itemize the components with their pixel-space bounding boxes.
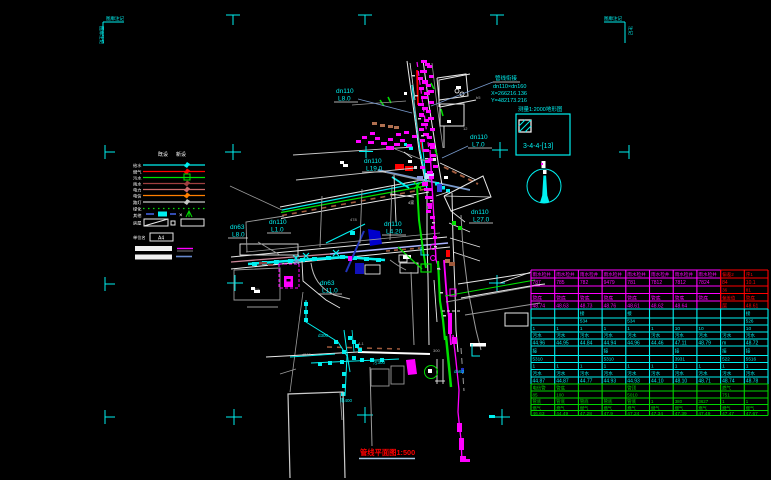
svg-text:9479: 9479 [604, 280, 615, 286]
svg-text:47.28: 47.28 [580, 411, 592, 417]
svg-text:管底: 管底 [556, 398, 565, 405]
svg-text:dn110: dn110 [471, 209, 489, 216]
svg-text:1: 1 [698, 364, 701, 370]
svg-text:绿化: 绿化 [133, 206, 142, 213]
svg-text:图廓注记: 图廓注记 [604, 15, 622, 22]
svg-text:燃气: 燃气 [580, 405, 589, 412]
svg-text:785: 785 [556, 280, 565, 286]
svg-text:751: 751 [722, 393, 730, 398]
svg-text:12: 12 [463, 126, 468, 131]
svg-text:管底: 管底 [604, 295, 614, 302]
svg-text:Y=482173.216: Y=482173.216 [491, 98, 527, 104]
svg-text:44.49: 44.49 [556, 411, 568, 417]
svg-text:其他: 其他 [133, 212, 142, 219]
svg-text:L8.0: L8.0 [338, 96, 351, 103]
svg-text:雨水检井: 雨水检井 [604, 271, 623, 278]
svg-text:电力: 电力 [133, 187, 141, 194]
svg-text:dn63: dn63 [454, 369, 465, 374]
svg-text:1: 1 [580, 364, 583, 370]
svg-text:污水: 污水 [133, 175, 142, 182]
svg-text:污300: 污300 [373, 359, 386, 366]
svg-text:47.49: 47.49 [698, 411, 710, 417]
svg-text:L8.0: L8.0 [232, 232, 245, 239]
svg-text:管底: 管底 [556, 385, 565, 392]
svg-text:47.9: 47.9 [604, 411, 614, 417]
svg-text:图廓注记: 图廓注记 [106, 15, 124, 22]
svg-text:782: 782 [580, 280, 589, 286]
svg-text:测量1:2000地形图: 测量1:2000地形图 [518, 105, 563, 113]
svg-text:序1: 序1 [746, 271, 754, 278]
svg-text:污水: 污水 [746, 370, 756, 377]
svg-text:dn63: dn63 [320, 280, 335, 287]
svg-text:5310: 5310 [604, 357, 615, 362]
svg-text:10: 10 [698, 326, 704, 332]
svg-text:46.63: 46.63 [533, 411, 545, 417]
svg-text:dn110: dn110 [470, 134, 488, 141]
svg-text:L27.0: L27.0 [473, 217, 490, 224]
svg-text:L19.0: L19.0 [366, 166, 383, 173]
svg-text:电信: 电信 [133, 193, 141, 200]
svg-text:污水: 污水 [651, 370, 661, 377]
svg-text:接: 接 [722, 348, 727, 355]
svg-text:A4: A4 [158, 236, 164, 242]
svg-text:燃气: 燃气 [133, 169, 142, 176]
svg-text:接: 接 [604, 348, 609, 355]
svg-text:管底: 管底 [533, 398, 542, 405]
svg-text:7812: 7812 [651, 280, 662, 286]
svg-text:d300: d300 [318, 333, 329, 338]
svg-text:接: 接 [580, 310, 585, 317]
svg-text:1: 1 [675, 364, 678, 370]
svg-text:污水: 污水 [675, 332, 685, 339]
svg-text:燃气: 燃气 [746, 405, 755, 412]
svg-text:管底: 管底 [675, 295, 685, 302]
svg-text:管线平面图1:500: 管线平面图1:500 [360, 448, 415, 457]
svg-text:L1.0: L1.0 [271, 227, 284, 234]
svg-text:781: 781 [627, 280, 636, 286]
svg-text:污水: 污水 [580, 370, 590, 377]
svg-text:接: 接 [675, 348, 680, 355]
svg-text:偏差值: 偏差值 [722, 295, 736, 302]
svg-text:1: 1 [627, 364, 630, 370]
svg-text:管线衔接: 管线衔接 [495, 74, 518, 82]
svg-text:接: 接 [627, 310, 632, 317]
svg-text:接: 接 [746, 348, 751, 355]
svg-text:管底: 管底 [604, 398, 613, 405]
svg-text:1: 1 [604, 364, 607, 370]
svg-text:燃气: 燃气 [627, 405, 636, 412]
svg-text:污水: 污水 [698, 370, 708, 377]
svg-text:路灯: 路灯 [133, 199, 142, 206]
svg-text:污水: 污水 [556, 370, 566, 377]
svg-text:污水: 污水 [746, 332, 756, 339]
svg-text:污水: 污水 [627, 370, 637, 377]
svg-text:管底: 管底 [580, 398, 589, 405]
svg-text:燃气: 燃气 [698, 405, 707, 412]
svg-text:1: 1 [722, 364, 725, 370]
svg-text:雨水检井: 雨水检井 [533, 271, 552, 278]
svg-text:dn110: dn110 [269, 219, 287, 226]
svg-text:管顶: 管顶 [627, 385, 636, 392]
svg-text:污水: 污水 [722, 370, 732, 377]
svg-text:380: 380 [675, 399, 683, 404]
svg-text:L7.0: L7.0 [472, 142, 485, 149]
svg-text:污水: 污水 [604, 332, 614, 339]
svg-text:管底: 管底 [627, 398, 636, 405]
svg-text:1: 1 [556, 326, 559, 332]
svg-text:雨水检井: 雨水检井 [580, 271, 599, 278]
svg-text:dn110: dn110 [364, 158, 382, 165]
svg-text:污水: 污水 [556, 332, 566, 339]
svg-text:84: 84 [722, 280, 728, 286]
svg-text:管底: 管底 [627, 295, 637, 302]
svg-text:偏差2: 偏差2 [722, 271, 734, 278]
svg-text:燃气: 燃气 [675, 405, 684, 412]
svg-text:1: 1 [533, 326, 536, 332]
svg-text:526: 526 [746, 319, 754, 324]
svg-text:10.1: 10.1 [746, 280, 756, 286]
svg-text:300: 300 [433, 348, 440, 353]
svg-text:管底: 管底 [533, 295, 543, 302]
svg-text:燃气: 燃气 [651, 405, 660, 412]
svg-text:X=266216.136: X=266216.136 [491, 91, 527, 97]
svg-text:7812: 7812 [675, 280, 686, 286]
svg-text:4-1: 4-1 [358, 341, 365, 346]
svg-text:1: 1 [533, 364, 536, 370]
svg-text:雨水检井: 雨水检井 [675, 271, 694, 278]
svg-text:100: 100 [556, 393, 564, 398]
svg-text:雨水检井: 雨水检井 [627, 271, 646, 278]
svg-text:污水: 污水 [675, 370, 685, 377]
svg-text:×: × [179, 213, 183, 219]
svg-text:dn63: dn63 [230, 224, 245, 231]
svg-text:管底: 管底 [746, 295, 756, 302]
svg-text:3931: 3931 [675, 357, 686, 362]
svg-text:污水: 污水 [722, 332, 732, 339]
svg-text:5516: 5516 [746, 357, 757, 362]
svg-text:dn110: dn110 [336, 88, 354, 95]
svg-text:1: 1 [556, 364, 559, 370]
svg-text:污水: 污水 [627, 332, 637, 339]
svg-text:5010: 5010 [627, 393, 638, 398]
svg-text:dn110: dn110 [384, 221, 402, 228]
svg-text:1: 1 [604, 326, 607, 332]
svg-text:534: 534 [627, 319, 635, 324]
svg-text:管底: 管底 [651, 295, 661, 302]
svg-text:污水: 污水 [651, 332, 661, 339]
svg-text:污水: 污水 [580, 332, 590, 339]
svg-text:燃气: 燃气 [722, 385, 731, 392]
svg-text:85: 85 [533, 393, 539, 398]
svg-text:接: 接 [746, 310, 751, 317]
svg-text:注记: 注记 [627, 26, 634, 35]
svg-text:522: 522 [722, 357, 730, 362]
svg-text:3627: 3627 [698, 399, 708, 404]
svg-text:d500: d500 [302, 352, 312, 357]
svg-text:燃气: 燃气 [604, 405, 613, 412]
svg-text:燃气: 燃气 [533, 405, 542, 412]
svg-text:雨水检井: 雨水检井 [651, 271, 670, 278]
svg-text:雨水检井: 雨水检井 [556, 271, 575, 278]
svg-text:雨水: 雨水 [133, 181, 142, 188]
svg-text:4家: 4家 [408, 199, 414, 205]
svg-text:10: 10 [746, 326, 752, 332]
svg-text:雨水检井: 雨水检井 [698, 271, 717, 278]
svg-text:房屋: 房屋 [133, 220, 141, 227]
svg-text:47.47: 47.47 [722, 411, 734, 417]
svg-text:36: 36 [722, 288, 728, 293]
svg-text:给水: 给水 [133, 162, 142, 169]
svg-text:47.67: 47.67 [746, 411, 758, 417]
svg-text:10: 10 [675, 326, 681, 332]
svg-text:L11.0: L11.0 [322, 288, 338, 295]
svg-text:污水: 污水 [533, 370, 543, 377]
svg-text:47.24: 47.24 [627, 411, 639, 417]
svg-text:81: 81 [746, 288, 752, 293]
svg-text:管底: 管底 [698, 295, 708, 302]
svg-text:燃气: 燃气 [722, 405, 731, 412]
svg-text:污水: 污水 [698, 332, 708, 339]
svg-text:534: 534 [580, 319, 588, 324]
svg-text:新设: 新设 [176, 151, 186, 158]
svg-text:787: 787 [533, 280, 542, 286]
svg-text:47.39: 47.39 [675, 411, 687, 417]
svg-text:燃气: 燃气 [556, 405, 565, 412]
svg-text:dn110×dn160: dn110×dn160 [493, 84, 526, 90]
svg-text:1: 1 [627, 326, 630, 332]
svg-text:47.34: 47.34 [651, 411, 663, 417]
svg-text:478: 478 [350, 217, 357, 222]
svg-text:电信管: 电信管 [533, 385, 547, 392]
svg-text:污水: 污水 [604, 370, 614, 377]
svg-text:b5: b5 [476, 95, 481, 100]
svg-text:1: 1 [651, 326, 654, 332]
svg-text:污水: 污水 [533, 332, 543, 339]
svg-text:接: 接 [533, 348, 538, 355]
svg-text:L4.20: L4.20 [386, 229, 403, 236]
svg-text:1: 1 [746, 364, 749, 370]
svg-text:5310: 5310 [533, 357, 544, 362]
svg-text:管底: 管底 [556, 295, 566, 302]
svg-text:单位名: 单位名 [133, 234, 146, 241]
svg-text:1: 1 [580, 326, 583, 332]
svg-text:图廓注记: 图廓注记 [98, 26, 105, 44]
svg-text:3-4-4-[13]: 3-4-4-[13] [523, 143, 553, 150]
svg-text:既设: 既设 [158, 151, 168, 158]
svg-text:1: 1 [651, 364, 654, 370]
svg-text:管底: 管底 [580, 295, 590, 302]
svg-text:7824: 7824 [698, 280, 709, 286]
